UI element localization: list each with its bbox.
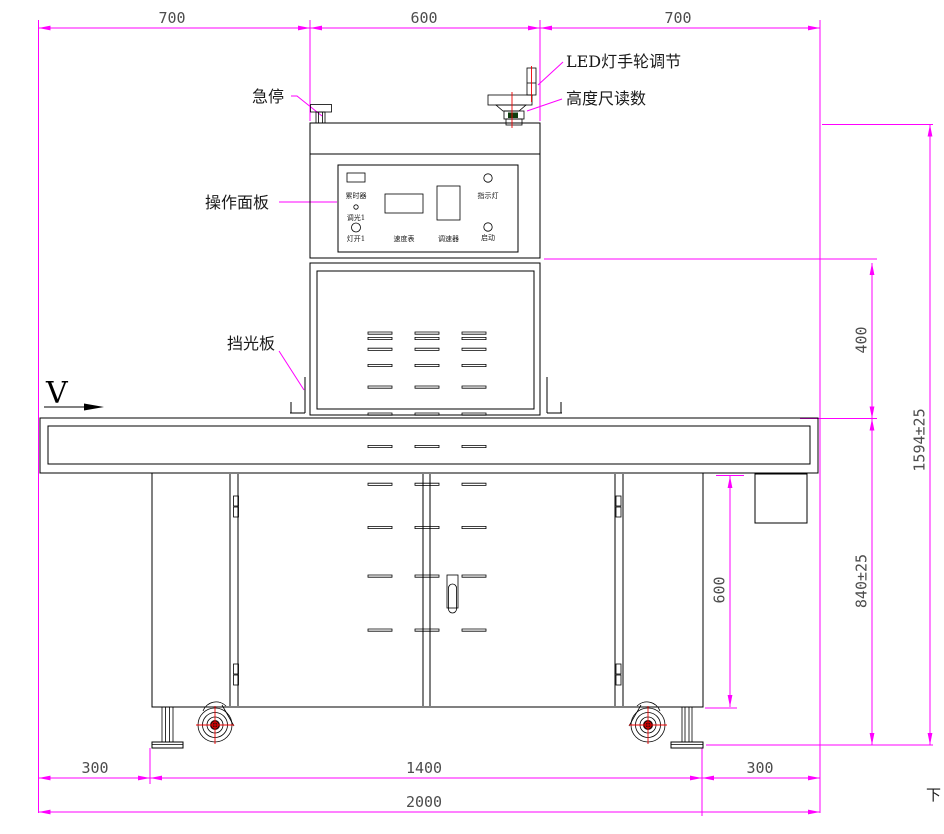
- panel-label-speed-controller: 调速器: [438, 234, 459, 243]
- start-button: [484, 223, 492, 231]
- panel-labels: 累时器 调光1 灯开1 速度表 调速器 指示灯 启动: [346, 191, 499, 243]
- speed-controller-unit: [437, 186, 460, 220]
- label-height-gauge: 高度尺读数: [566, 89, 646, 108]
- label-operation-panel: 操作面板: [205, 193, 269, 212]
- cabinet-dividers: [230, 474, 623, 706]
- door-hinges: [234, 496, 622, 685]
- leader-emergency-stop: [291, 96, 322, 116]
- vent-slats-right: [462, 332, 486, 631]
- caster-right-crosshair: [629, 706, 667, 744]
- label-page-char: 下: [926, 786, 941, 804]
- vent-slats-middle: [415, 332, 439, 631]
- panel-label-speed-meter: 速度表: [394, 234, 415, 243]
- dimmer1-knob: [354, 205, 358, 209]
- dim-right-lower: 840±25: [853, 554, 871, 608]
- lamp-on1-button: [352, 223, 361, 232]
- label-light-shield: 挡光板: [227, 334, 275, 353]
- machine-front-elevation: 700 600 700 300 1400 300 2000 400 840±25…: [0, 0, 944, 834]
- light-shield-right: [547, 377, 562, 413]
- dim-top-left: 700: [158, 9, 185, 27]
- dimension-arrowheads: [39, 26, 933, 815]
- caster-left-crosshair: [196, 706, 234, 744]
- lamp-housing-outer: [310, 263, 540, 415]
- timer-display: [347, 173, 365, 182]
- technical-drawing-canvas: 700 600 700 300 1400 300 2000 400 840±25…: [0, 0, 944, 834]
- leveling-foot-left: [152, 707, 183, 748]
- dim-bottom-middle: 1400: [406, 759, 442, 777]
- leader-light-shield: [279, 351, 304, 390]
- cabinet-body: [152, 473, 703, 707]
- dim-top-middle: 600: [410, 9, 437, 27]
- gauge-base: [506, 119, 522, 125]
- panel-label-lamp-on1: 灯开1: [347, 234, 365, 243]
- vent-slats-left: [368, 332, 392, 631]
- machine-upper-body: [310, 123, 540, 258]
- dim-cabinet-height: 600: [711, 576, 729, 603]
- leader-led-handwheel: [538, 62, 563, 85]
- leveling-foot-right: [671, 707, 703, 748]
- handwheel-disc: [488, 95, 532, 105]
- panel-label-indicator: 指示灯: [478, 191, 499, 200]
- label-emergency-stop: 急停: [252, 87, 284, 106]
- label-led-handwheel: LED灯手轮调节: [566, 52, 681, 71]
- gauge-neck: [496, 105, 526, 111]
- dim-bottom-total: 2000: [406, 793, 442, 811]
- machine-outline: [40, 68, 818, 748]
- label-direction-v: V: [45, 376, 69, 411]
- speed-meter-display: [385, 194, 423, 213]
- dim-bottom-left: 300: [81, 759, 108, 777]
- dim-bottom-right: 300: [746, 759, 773, 777]
- panel-label-dimmer1: 调光1: [347, 213, 365, 222]
- centerlines: [196, 66, 667, 744]
- door-handle: [447, 575, 458, 613]
- dim-right-total: 1594±25: [911, 408, 929, 471]
- panel-label-timer: 累时器: [346, 191, 367, 200]
- dim-top-right: 700: [664, 9, 691, 27]
- under-table-box: [755, 474, 807, 523]
- dimension-text: 700 600 700 300 1400 300 2000 400 840±25…: [81, 9, 928, 811]
- dim-right-upper: 400: [853, 326, 871, 353]
- panel-label-start: 启动: [481, 233, 495, 242]
- emergency-stop-button: [311, 105, 332, 124]
- light-shield-left: [290, 377, 305, 413]
- indicator-light-lamp: [484, 174, 492, 182]
- height-gauge-reading: [508, 113, 518, 119]
